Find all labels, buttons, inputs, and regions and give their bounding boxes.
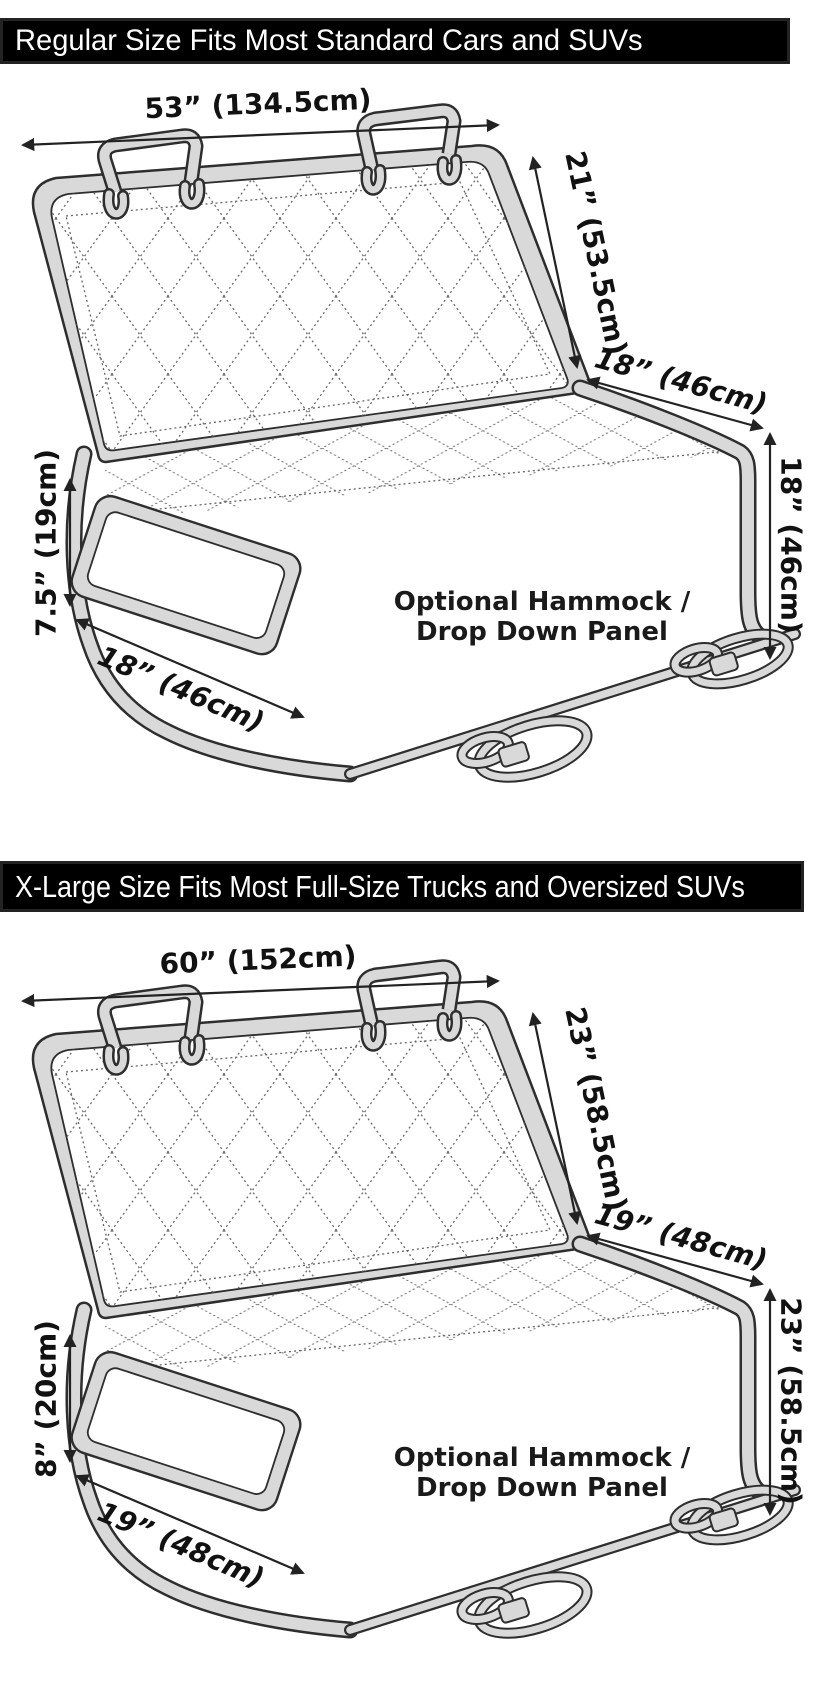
drop-height-label: 23” (58.5cm) <box>775 1297 808 1505</box>
flap-height-label: 8” (20cm) <box>30 1320 63 1478</box>
width-dimension-label: 53” (134.5cm) <box>144 83 372 125</box>
size-banner-xlarge: X-Large Size Fits Most Full-Size Trucks … <box>0 861 804 912</box>
banner-text: Regular Size Fits Most Standard Cars and… <box>15 24 643 58</box>
hammock-note-line1: Optional Hammock / <box>394 1443 691 1473</box>
size-banner-regular: Regular Size Fits Most Standard Cars and… <box>0 18 790 64</box>
width-dimension-label: 60” (152cm) <box>159 939 357 980</box>
flap-height-label: 7.5” (19cm) <box>30 449 63 637</box>
hammock-note-line2: Drop Down Panel <box>416 1473 668 1503</box>
hammock-note-line2: Drop Down Panel <box>416 617 668 647</box>
regular-size-diagram: 53” (134.5cm) 21” (53.5cm) 18” (46cm) 18… <box>0 62 828 802</box>
xlarge-size-diagram: 60” (152cm) 23” (58.5cm) 19” (48cm) 23” … <box>0 912 828 1686</box>
page: Regular Size Fits Most Standard Cars and… <box>0 0 828 1686</box>
banner-text: X-Large Size Fits Most Full-Size Trucks … <box>15 869 745 905</box>
drop-height-label: 18” (46cm) <box>775 456 808 633</box>
hammock-note-line1: Optional Hammock / <box>394 587 691 617</box>
